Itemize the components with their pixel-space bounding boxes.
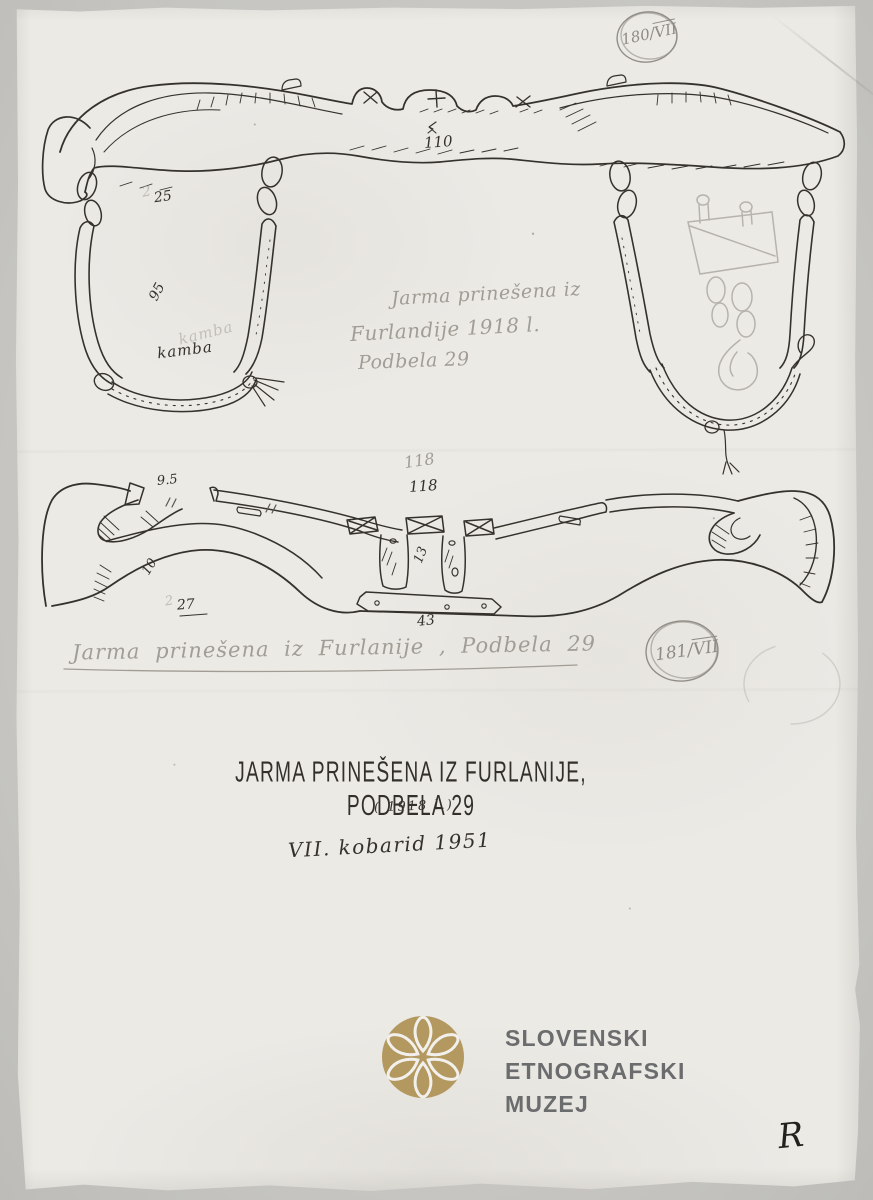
sem-logo	[382, 1016, 464, 1098]
pencil-note-line3: Podbela 29	[358, 348, 470, 374]
measurement-118-ink: 118	[408, 476, 438, 496]
sem-logo-circle	[382, 1016, 464, 1098]
sem-logo-line2: ETNOGRAFSKI	[505, 1055, 686, 1088]
yoke-line-art	[0, 0, 873, 1200]
measurement-110: 110	[423, 132, 453, 152]
measurement-9-5: 9.5	[156, 472, 178, 489]
sem-logo-line3: MUZEJ	[505, 1088, 686, 1121]
sem-logo-line1: SLOVENSKI	[505, 1022, 686, 1055]
measurement-25: 25	[153, 188, 173, 206]
scanned-sheet: 180/VII 181/VII 110 2 25 95 kamba kamba …	[0, 0, 873, 1200]
pencil-clevis-sketch	[688, 195, 778, 390]
signature-r: R	[776, 1115, 806, 1157]
sem-logo-text: SLOVENSKI ETNOGRAFSKI MUZEJ	[505, 1022, 686, 1121]
measurement-27: 27	[176, 596, 195, 613]
stamp-bottom-roman: VII	[692, 637, 720, 660]
yoke-profile-drawing	[42, 483, 834, 616]
printed-year: ( 1918 l.)	[374, 798, 454, 816]
measurement-43: 43	[416, 612, 435, 630]
stamp-circles	[614, 8, 721, 684]
